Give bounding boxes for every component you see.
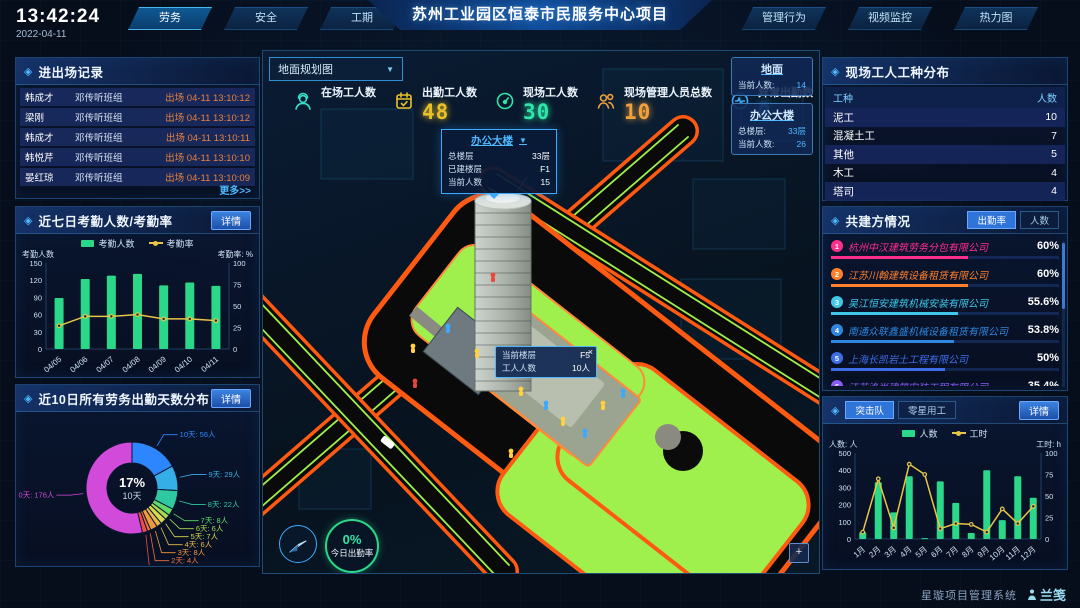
close-icon[interactable]: × xyxy=(588,347,593,357)
team-name: 邓传听班组 xyxy=(75,150,165,164)
current-date: 2022-04-11 xyxy=(16,29,100,40)
exit-event: 出场 04-11 13:10:10 xyxy=(165,150,250,164)
stat-label: 出勤工人数 xyxy=(422,87,477,99)
worker-types-table: 泥工10混凝土工7其他5木工4塔司4 xyxy=(823,108,1067,201)
legend-label: 人数 xyxy=(919,427,937,440)
table-row: 混凝土工7 xyxy=(825,127,1065,146)
company-name: 南通众联鑫盛机械设备租赁有限公司 xyxy=(848,323,1023,338)
tab-人数[interactable]: 人数 xyxy=(1020,211,1059,229)
entry-exit-row: 梁刚邓传听班组出场 04-11 13:10:12 xyxy=(20,108,255,126)
svg-text:120: 120 xyxy=(29,276,42,285)
table-row: 木工4 xyxy=(825,164,1065,183)
stat-value: 48 xyxy=(422,100,449,124)
entry-exit-panel: ◈ 进出场记录 韩成才邓传听班组出场 04-11 13:10:12梁刚邓传听班组… xyxy=(15,57,260,199)
col-count: 人数 xyxy=(1017,90,1057,105)
legend-line xyxy=(149,242,163,244)
svg-text:4月: 4月 xyxy=(898,545,913,560)
exit-event: 出场 04-11 13:10:12 xyxy=(165,110,250,124)
progress-track xyxy=(831,284,1059,287)
team-name: 邓传听班组 xyxy=(75,130,166,144)
floor-card-title: 办公大楼 xyxy=(738,107,806,123)
attendance-rate: 55.6% xyxy=(1028,296,1059,308)
svg-text:12月: 12月 xyxy=(1019,545,1038,563)
worker-icon xyxy=(291,89,315,113)
svg-text:6月: 6月 xyxy=(929,545,944,560)
table-header: 工种 人数 xyxy=(825,87,1065,108)
tab-突击队[interactable]: 突击队 xyxy=(845,401,894,419)
layer-select-value: 地面规划图 xyxy=(278,61,333,77)
partner-row[interactable]: 3吴江恒安建筑机械安装有限公司55.6% xyxy=(831,294,1059,315)
progress-fill xyxy=(831,340,954,343)
progress-track xyxy=(831,368,1059,371)
team-name: 邓传听班组 xyxy=(75,110,165,124)
progress-fill xyxy=(831,284,968,287)
scrollbar-thumb[interactable] xyxy=(1062,243,1065,309)
floor-card-办公大楼[interactable]: 办公大楼总楼层:33层当前人数:26 xyxy=(731,103,813,155)
svg-text:300: 300 xyxy=(838,483,851,492)
panel-title: 共建方情况 xyxy=(845,211,967,230)
vendor-logo: 兰笺 xyxy=(1027,585,1066,604)
building-popup-rows: 总楼层33层已建楼层F1当前人数15 xyxy=(448,150,550,189)
worker-type: 混凝土工 xyxy=(833,128,1017,143)
worker-name: 梁刚 xyxy=(25,110,75,124)
svg-text:25: 25 xyxy=(1045,514,1053,523)
squad-panel: ◈ 突击队零星用工 详情 人数 工时 人数: 人 工时: h 010020030… xyxy=(822,396,1068,570)
diamond-icon: ◈ xyxy=(24,392,32,405)
worker-type: 其他 xyxy=(833,147,1017,162)
diamond-icon: ◈ xyxy=(831,214,839,227)
svg-text:04/07: 04/07 xyxy=(95,354,117,374)
worker-count: 7 xyxy=(1017,130,1057,142)
svg-text:50: 50 xyxy=(233,302,241,311)
floor-card-地面[interactable]: 地面当前人数:14 xyxy=(731,57,813,96)
fullscreen-icon[interactable]: + xyxy=(789,543,809,563)
clock: 13:42:24 2022-04-11 xyxy=(16,6,100,40)
partner-row[interactable]: 2江苏川翰建筑设备租赁有限公司60% xyxy=(831,266,1059,287)
diamond-icon: ◈ xyxy=(831,404,839,417)
svg-text:0天: 176人: 0天: 176人 xyxy=(19,491,55,500)
floor-tooltip-row: 当前楼层F5 xyxy=(502,349,590,362)
svg-text:150: 150 xyxy=(29,259,42,268)
stat-value: 30 xyxy=(523,100,550,124)
worker-count: 4 xyxy=(1017,167,1057,179)
legend-line xyxy=(952,432,966,434)
svg-text:10天: 10天 xyxy=(122,491,141,501)
detail-button[interactable]: 详情 xyxy=(211,389,251,408)
legend-swatch xyxy=(81,240,94,247)
svg-text:11月: 11月 xyxy=(1004,545,1022,562)
rank-badge: 5 xyxy=(831,352,843,364)
entry-exit-list: 韩成才邓传听班组出场 04-11 13:10:12梁刚邓传听班组出场 04-11… xyxy=(16,85,259,186)
today-attendance-rate: 0% 今日出勤率 xyxy=(325,519,379,573)
legend-swatch xyxy=(902,430,915,437)
progress-track xyxy=(831,312,1059,315)
nav-tab-安全[interactable]: 安全 xyxy=(224,7,308,30)
svg-text:30: 30 xyxy=(34,328,42,337)
current-time: 13:42:24 xyxy=(16,6,100,28)
svg-text:04/08: 04/08 xyxy=(121,354,143,374)
managers-icon xyxy=(594,89,618,113)
vendor-logo-icon xyxy=(1027,589,1037,601)
entry-exit-row: 韩成才邓传听班组出场 04-11 13:10:12 xyxy=(20,88,255,106)
building-popup-row: 当前人数15 xyxy=(448,176,550,189)
stat-现场工人数: 现场工人数30 xyxy=(493,83,578,124)
rank-badge: 6 xyxy=(831,380,843,386)
company-name: 杭州中汉建筑劳务分包有限公司 xyxy=(848,239,1032,254)
stat-label: 在场工人数 xyxy=(321,87,376,99)
nav-tab-劳务[interactable]: 劳务 xyxy=(128,7,212,30)
table-row: 塔司4 xyxy=(825,182,1065,201)
floor-card-title: 地面 xyxy=(738,61,806,77)
floor-tooltip-rows: 当前楼层F5工人人数10人 xyxy=(502,349,590,375)
navigation-arrow-icon xyxy=(287,533,309,555)
svg-text:04/06: 04/06 xyxy=(68,354,90,374)
stat-出勤工人数: 出勤工人数48 xyxy=(392,83,477,124)
progress-fill xyxy=(831,312,958,315)
panel-title: 进出场记录 xyxy=(38,62,251,81)
svg-text:04/05: 04/05 xyxy=(42,354,64,374)
table-row: 泥工10 xyxy=(825,108,1065,127)
rank-badge: 4 xyxy=(831,324,843,336)
team-name: 邓传听班组 xyxy=(75,90,165,104)
progress-fill xyxy=(831,368,945,371)
partner-row[interactable]: 6江苏洛尚建筑安装工程有限公司35.4% xyxy=(831,378,1059,386)
svg-text:04/09: 04/09 xyxy=(147,354,169,374)
chart-legend: 考勤人数 考勤率 xyxy=(16,236,259,250)
rank-badge: 1 xyxy=(831,240,843,252)
svg-text:50: 50 xyxy=(1045,492,1053,501)
building-popup-row: 总楼层33层 xyxy=(448,150,550,163)
svg-text:10天: 56人: 10天: 56人 xyxy=(180,430,216,439)
progress-track xyxy=(831,340,1059,343)
svg-text:5月: 5月 xyxy=(914,545,929,560)
rate-value: 0% xyxy=(343,533,362,547)
stat-label: 现场管理人员总数 xyxy=(624,87,712,99)
worker-name: 韩成才 xyxy=(25,130,75,144)
worker-types-panel: ◈ 现场工人工种分布 工种 人数 泥工10混凝土工7其他5木工4塔司4 xyxy=(822,57,1068,201)
rank-badge: 2 xyxy=(831,268,843,280)
partner-row[interactable]: 4南通众联鑫盛机械设备租赁有限公司53.8% xyxy=(831,322,1059,343)
calendar-icon xyxy=(392,89,416,113)
diamond-icon: ◈ xyxy=(831,65,839,78)
stat-label: 现场工人数 xyxy=(523,87,578,99)
diamond-icon: ◈ xyxy=(24,65,32,78)
panel-title: 现场工人工种分布 xyxy=(845,62,1059,81)
floor-tooltip: × 当前楼层F5工人人数10人 xyxy=(495,346,597,378)
svg-text:17%: 17% xyxy=(119,475,145,490)
company-name: 吴江恒安建筑机械安装有限公司 xyxy=(848,295,1023,310)
svg-text:8月: 8月 xyxy=(960,545,975,560)
worker-type: 塔司 xyxy=(833,184,1017,199)
attendance-rate: 50% xyxy=(1037,352,1059,364)
exit-event: 出场 04-11 13:10:11 xyxy=(166,130,250,144)
attendance-days-panel: ◈ 近10日所有劳务出勤天数分布 详情 10天: 56人9天: 29人8天: 2… xyxy=(15,384,260,567)
partners-panel: ◈ 共建方情况 出勤率人数 1杭州中汉建筑劳务分包有限公司60%2江苏川翰建筑设… xyxy=(822,206,1068,391)
svg-text:1天: 6人: 1天: 6人 xyxy=(166,564,194,565)
building-popup[interactable]: 办公大楼▼ 总楼层33层已建楼层F1当前人数15 xyxy=(441,129,557,194)
nav-tab-管理行为[interactable]: 管理行为 xyxy=(742,7,826,30)
nav-tab-视频监控[interactable]: 视频监控 xyxy=(848,7,932,30)
svg-text:75: 75 xyxy=(233,281,241,290)
diamond-icon: ◈ xyxy=(24,214,32,227)
more-link[interactable]: 更多>> xyxy=(219,182,251,197)
col-worker-type: 工种 xyxy=(833,90,1017,105)
attendance-rate: 60% xyxy=(1037,240,1059,252)
svg-text:9天: 29人: 9天: 29人 xyxy=(209,470,241,479)
worker-name: 晏红琼 xyxy=(25,170,75,184)
site-map[interactable]: 地面规划图 ▼ 在场工人数出勤工人数48现场工人数30现场管理人员总数10异常出… xyxy=(262,50,820,574)
svg-text:100: 100 xyxy=(233,259,246,268)
company-name: 江苏洛尚建筑安装工程有限公司 xyxy=(848,379,1023,387)
weekly-attendance-panel: ◈ 近七日考勤人数/考勤率 详情 考勤人数 考勤率 考勤人数 考勤率: % 03… xyxy=(15,206,260,378)
compass-control[interactable] xyxy=(279,525,317,563)
worker-count: 4 xyxy=(1017,185,1057,197)
map-layer-select[interactable]: 地面规划图 ▼ xyxy=(269,57,403,81)
svg-text:100: 100 xyxy=(838,518,851,527)
svg-text:7月: 7月 xyxy=(945,545,960,560)
svg-text:3月: 3月 xyxy=(883,545,898,560)
rate-label: 今日出勤率 xyxy=(331,547,374,559)
nav-tab-热力图[interactable]: 热力图 xyxy=(954,7,1038,30)
legend-label: 考勤率 xyxy=(167,237,194,250)
table-row: 其他5 xyxy=(825,145,1065,164)
chevron-down-icon[interactable]: ▼ xyxy=(519,136,527,145)
partners-tabs: 出勤率人数 xyxy=(967,211,1059,229)
attendance-rate: 60% xyxy=(1037,268,1059,280)
stat-现场管理人员总数: 现场管理人员总数10 xyxy=(594,83,712,124)
detail-button[interactable]: 详情 xyxy=(211,211,251,230)
legend-label: 考勤人数 xyxy=(98,237,134,250)
worker-count: 10 xyxy=(1017,111,1057,123)
legend-label: 工时 xyxy=(970,427,988,440)
worker-type: 木工 xyxy=(833,165,1017,180)
legend-dot xyxy=(956,431,961,436)
floor-card-row: 当前人数:26 xyxy=(738,138,806,151)
attendance-rate: 35.4% xyxy=(1028,380,1059,386)
svg-text:8天: 22人: 8天: 22人 xyxy=(208,500,240,509)
entry-exit-row: 韩成才邓传听班组出场 04-11 13:10:11 xyxy=(20,128,255,146)
vendor-logo-text: 兰笺 xyxy=(1040,585,1066,604)
panel-title: 近七日考勤人数/考勤率 xyxy=(38,211,211,230)
svg-text:1月: 1月 xyxy=(852,545,867,560)
stat-value: 10 xyxy=(624,100,651,124)
company-name: 上海长凯岩土工程有限公司 xyxy=(848,351,1032,366)
system-name: 星璇项目管理系统 xyxy=(921,587,1017,603)
svg-text:200: 200 xyxy=(838,501,851,510)
floor-card-row: 当前人数:14 xyxy=(738,79,806,92)
worker-count: 5 xyxy=(1017,148,1057,160)
svg-text:10月: 10月 xyxy=(988,545,1007,563)
worker-type: 泥工 xyxy=(833,110,1017,125)
stat-在场工人数: 在场工人数 xyxy=(291,83,376,124)
progress-track xyxy=(831,256,1059,259)
svg-text:60: 60 xyxy=(34,311,42,320)
company-name: 江苏川翰建筑设备租赁有限公司 xyxy=(848,267,1032,282)
page-title: 苏州工业园区恒泰市民服务中心项目 xyxy=(368,0,712,30)
svg-text:0: 0 xyxy=(38,345,42,354)
building-popup-row: 已建楼层F1 xyxy=(448,163,550,176)
svg-text:2月: 2月 xyxy=(867,545,882,560)
rank-badge: 3 xyxy=(831,296,843,308)
squad-monthly-chart: 010020030040050002550751001月2月3月4月5月6月7月… xyxy=(823,447,1067,565)
weekly-attendance-chart: 0306090120150025507510004/0504/0604/0704… xyxy=(16,257,259,375)
tab-零星用工[interactable]: 零星用工 xyxy=(898,401,956,419)
gauge-icon xyxy=(493,89,517,113)
tab-出勤率[interactable]: 出勤率 xyxy=(967,211,1016,229)
attendance-days-donut: 10天: 56人9天: 29人8天: 22人7天: 8人6天: 6人5天: 7人… xyxy=(16,412,259,565)
chevron-down-icon: ▼ xyxy=(386,65,394,74)
nav-left: 劳务安全工期 xyxy=(128,7,404,30)
partners-list: 1杭州中汉建筑劳务分包有限公司60%2江苏川翰建筑设备租赁有限公司60%3吴江恒… xyxy=(823,234,1067,386)
svg-text:100: 100 xyxy=(1045,449,1058,458)
worker-name: 韩成才 xyxy=(25,90,75,104)
progress-fill xyxy=(831,256,968,259)
attendance-rate: 53.8% xyxy=(1028,324,1059,336)
panel-title: 近10日所有劳务出勤天数分布 xyxy=(38,389,211,408)
floor-cards: 地面当前人数:14办公大楼总楼层:33层当前人数:26 xyxy=(731,57,813,162)
squad-tabs: 突击队零星用工 xyxy=(845,401,1019,419)
svg-text:0: 0 xyxy=(1045,535,1049,544)
svg-text:400: 400 xyxy=(838,466,851,475)
svg-text:04/11: 04/11 xyxy=(200,354,221,374)
svg-text:75: 75 xyxy=(1045,471,1053,480)
building-popup-title[interactable]: 办公大楼 xyxy=(471,133,513,148)
svg-text:90: 90 xyxy=(34,293,42,302)
exit-event: 出场 04-11 13:10:12 xyxy=(165,90,250,104)
team-name: 邓传听班组 xyxy=(75,170,165,184)
partner-row[interactable]: 1杭州中汉建筑劳务分包有限公司60% xyxy=(831,238,1059,259)
legend-dot xyxy=(153,241,158,246)
floor-tooltip-row: 工人人数10人 xyxy=(502,362,590,375)
svg-text:25: 25 xyxy=(233,324,241,333)
footer: 星璇项目管理系统 兰笺 xyxy=(921,585,1066,604)
entry-exit-row: 韩悦芹邓传听班组出场 04-11 13:10:10 xyxy=(20,148,255,166)
svg-text:0: 0 xyxy=(233,345,237,354)
detail-button[interactable]: 详情 xyxy=(1019,401,1059,420)
worker-name: 韩悦芹 xyxy=(25,150,75,164)
partner-row[interactable]: 5上海长凯岩土工程有限公司50% xyxy=(831,350,1059,371)
svg-text:04/10: 04/10 xyxy=(173,354,195,374)
svg-text:0: 0 xyxy=(847,535,851,544)
svg-text:500: 500 xyxy=(838,449,851,458)
chart-legend: 人数 工时 xyxy=(823,426,1067,440)
nav-right: 管理行为视频监控热力图 xyxy=(742,7,1038,30)
floor-card-row: 总楼层:33层 xyxy=(738,125,806,138)
